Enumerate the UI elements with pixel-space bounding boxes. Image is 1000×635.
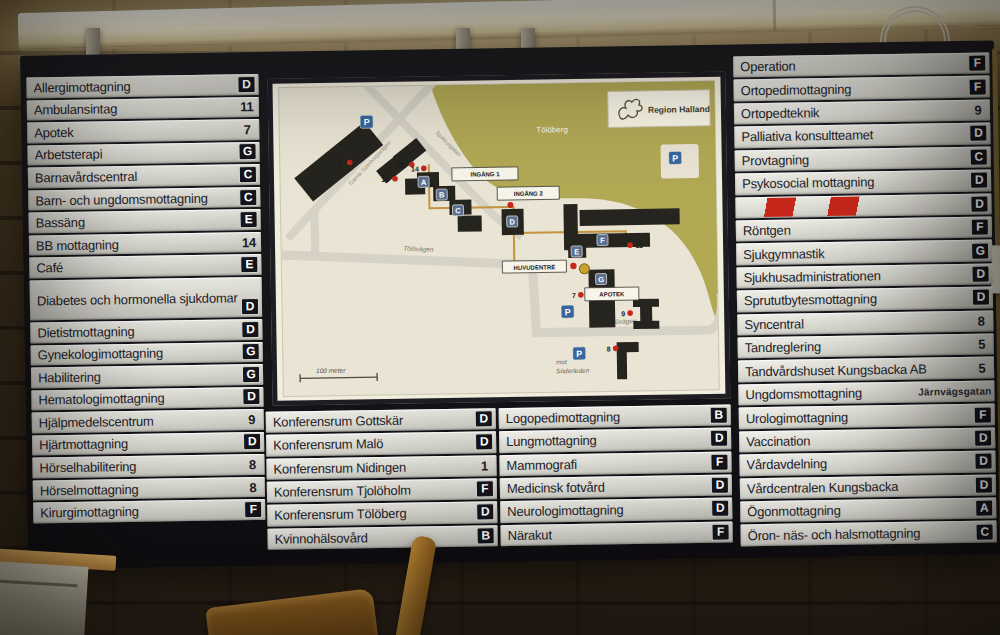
- row-badge: D: [969, 125, 987, 142]
- directory-row: BarnavårdscentralC: [28, 164, 260, 188]
- directory-row: Hjälpmedelscentrum9: [32, 409, 264, 433]
- row-label: Gynekologimottagning: [38, 345, 242, 363]
- directory-row: Hörselmottagning8: [33, 477, 265, 501]
- row-badge: C: [239, 166, 257, 183]
- row-label: Hörselmottagning: [40, 480, 244, 498]
- building-badge-b: B: [436, 189, 447, 200]
- directory-row: Psykosocial mottagningD: [735, 170, 991, 195]
- photo-scene: AllergimottagningDAmbulansintag11Apotek7…: [0, 0, 1000, 635]
- row-label: Palliativa konsultteamet: [741, 126, 969, 145]
- row-label: Barnavårdscentral: [35, 167, 239, 185]
- building-badge-c: C: [452, 205, 463, 216]
- directory-row: NeurologimottagningD: [500, 498, 732, 523]
- row-value: 5: [973, 360, 991, 375]
- svg-text:P: P: [576, 349, 582, 359]
- directory-row: NärakutF: [500, 521, 732, 546]
- row-badge: D: [242, 388, 260, 405]
- svg-text:3: 3: [339, 160, 343, 167]
- hill-label: Tölöberg: [536, 125, 568, 134]
- row-label: Café: [36, 257, 240, 275]
- row-label: Ortopedimottagning: [741, 79, 969, 98]
- row-label: Neurologimottagning: [507, 501, 711, 519]
- svg-text:9: 9: [621, 310, 625, 317]
- directory-row: ProvtagningC: [735, 146, 991, 171]
- svg-text:7: 7: [572, 292, 576, 299]
- row-label: Syncentral: [744, 314, 972, 333]
- row-badge: D: [237, 76, 255, 93]
- building-badge-f: F: [597, 234, 608, 245]
- directory-row: Palliativa konsultteametD: [734, 123, 990, 148]
- directory-row: HabiliteringG: [31, 364, 263, 388]
- directory-row: ArbetsterapiG: [27, 142, 259, 166]
- building-badge-a: A: [418, 176, 429, 187]
- row-badge: B: [476, 527, 494, 544]
- row-label: Konferensrum Gottskär: [273, 412, 475, 430]
- parking-icon: P: [669, 151, 682, 164]
- directory-row: Apotek7: [27, 119, 259, 143]
- row-label: Vaccination: [746, 431, 974, 450]
- directory-row: CaféE: [29, 254, 261, 278]
- directory-row: HjärtmottagningD: [32, 432, 264, 456]
- directory-row: Tandreglering5: [738, 333, 994, 358]
- directory-row: BassängE: [28, 209, 260, 233]
- directory-board: AllergimottagningDAmbulansintag11Apotek7…: [20, 40, 1000, 569]
- hospital-map: Gamla Göteborgsvägen Sjukhusgatan Tölövä…: [267, 72, 730, 406]
- row-label: Bassäng: [36, 212, 240, 230]
- directory-row: BB mottagning14: [29, 232, 261, 256]
- row-label: Logopedimottagning: [506, 408, 710, 426]
- row-label: Konferensrum Tjolöholm: [274, 482, 476, 500]
- directory-row: LogopedimottagningB: [499, 405, 731, 430]
- pharmacy-label: APOTEK: [585, 287, 639, 301]
- row-badge: D: [243, 433, 261, 450]
- row-label: Hjärtmottagning: [39, 435, 243, 453]
- row-badge: A: [975, 500, 993, 517]
- row-label: Lungmottagning: [506, 431, 710, 449]
- parking-icon: P: [360, 115, 373, 128]
- row-badge: D: [971, 265, 989, 282]
- svg-text:INGÅNG 2: INGÅNG 2: [514, 190, 544, 196]
- row-badge: F: [974, 406, 992, 423]
- svg-text:A: A: [421, 178, 427, 187]
- entrance-label: INGÅNG 1: [452, 167, 518, 181]
- row-label: Mammografi: [506, 455, 710, 473]
- svg-text:14: 14: [411, 165, 419, 172]
- row-label: Ungdomsmottagning: [745, 385, 918, 403]
- row-label: Arbetsterapi: [34, 145, 238, 163]
- svg-text:10: 10: [398, 162, 406, 169]
- row-label: Hematologimottagning: [38, 390, 242, 408]
- row-label: Provtagning: [742, 150, 970, 169]
- scale-label: 100 meter: [316, 367, 346, 374]
- svg-text:P: P: [364, 117, 370, 127]
- bus-stop-icon: [579, 264, 589, 274]
- row-badge: F: [968, 55, 986, 72]
- row-badge: D: [974, 453, 992, 470]
- row-badge: C: [970, 148, 988, 165]
- conference-rooms-panel: Konferensrum GottskärDKonferensrum MalöD…: [266, 408, 498, 550]
- row-label: Psykosocial mottagning: [742, 173, 970, 192]
- directory-row: UrologimottagningF: [739, 404, 995, 429]
- row-badge: D: [972, 289, 990, 306]
- svg-text:11: 11: [635, 242, 643, 249]
- directory-row: LungmottagningD: [499, 428, 731, 453]
- directory-row: Syncentral8: [737, 310, 993, 335]
- hazard-stripes: [757, 196, 875, 217]
- row-value: 7: [238, 122, 256, 137]
- row-badge: D: [241, 298, 259, 315]
- row-badge: F: [244, 501, 262, 518]
- svg-text:E: E: [574, 247, 579, 256]
- directory-row: Konferensrum TjolöholmF: [267, 478, 497, 503]
- row-label: Hörselhabilitering: [39, 457, 243, 475]
- row-value: 8: [243, 457, 261, 472]
- row-badge: E: [240, 256, 258, 273]
- directory-row: RöntgenF: [736, 216, 992, 241]
- entrance-label: HUVUDENTRÉ: [502, 260, 566, 273]
- row-badge: D: [970, 195, 988, 212]
- directory-row: ÖgonmottagningA: [740, 497, 996, 522]
- logo-text: Region Halland: [648, 104, 710, 115]
- row-value: Järnvägsgatan: [918, 386, 991, 398]
- row-badge: D: [475, 410, 493, 427]
- svg-text:B: B: [439, 191, 445, 200]
- row-badge: D: [970, 172, 988, 189]
- row-badge: C: [975, 523, 993, 540]
- directory-row: Hörselhabilitering8: [32, 454, 264, 478]
- row-label: Apotek: [34, 122, 238, 140]
- table-drawer: [0, 561, 89, 635]
- row-badge: D: [711, 500, 729, 517]
- directory-row: Vårdcentralen KungsbackaD: [740, 474, 996, 499]
- directory-row: Medicinsk fotvårdD: [500, 475, 732, 500]
- row-label: Tandvårdshuset Kungsbacka AB: [745, 360, 973, 379]
- row-badge: D: [975, 476, 993, 493]
- directory-row: AllergimottagningD: [26, 74, 258, 98]
- row-label: Hjälpmedelscentrum: [39, 412, 243, 430]
- row-badge: F: [971, 219, 989, 236]
- directory-row: GynekologimottagningG: [31, 341, 263, 365]
- svg-text:8: 8: [607, 345, 611, 352]
- svg-text:HUVUDENTRÉ: HUVUDENTRÉ: [514, 263, 556, 271]
- svg-text:P: P: [565, 307, 571, 317]
- row-badge: F: [711, 523, 729, 540]
- svg-text:G: G: [598, 275, 604, 284]
- svg-text:D: D: [509, 217, 515, 226]
- row-label: Öron- näs- och halsmottagning: [748, 524, 976, 543]
- row-value: 9: [243, 412, 261, 427]
- building-badge-g: G: [596, 273, 607, 284]
- row-value: 1: [475, 458, 493, 473]
- row-label: Kirurgimottagning: [40, 502, 244, 520]
- directory-row: SjukgymnastikG: [736, 240, 992, 265]
- row-value: 9: [969, 103, 987, 118]
- row-label: Ögonmottagning: [747, 501, 975, 520]
- row-badge: G: [238, 143, 256, 160]
- directory-row: KvinnohälsovårdB: [267, 525, 497, 550]
- directory-row: SprututbytesmottagningD: [737, 287, 993, 312]
- row-label: Habilitering: [38, 367, 242, 385]
- row-badge: F: [476, 480, 494, 497]
- directory-row: VaccinationD: [739, 427, 995, 452]
- directory-row: Konferensrum GottskärD: [266, 408, 496, 433]
- building-badge-d: D: [507, 216, 518, 227]
- row-label: Tandreglering: [745, 337, 973, 356]
- row-badge: C: [239, 188, 257, 205]
- clinics-panel: LogopedimottagningBLungmottagningDMammog…: [499, 405, 733, 547]
- row-label: Vårdavdelning: [746, 454, 974, 473]
- directory-row: HematologimottagningD: [31, 386, 263, 410]
- directory-row: Ambulansintag11: [27, 96, 259, 120]
- row-badge: D: [241, 321, 259, 338]
- svg-text:INGÅNG 1: INGÅNG 1: [470, 171, 500, 177]
- row-label: Dietistmottagning: [37, 322, 241, 340]
- row-value: 5: [973, 337, 991, 352]
- row-label: Ortopedteknik: [741, 103, 969, 122]
- map-panel: Gamla Göteborgsvägen Sjukhusgatan Tölövä…: [267, 72, 730, 406]
- directory-row: Konferensrum MalöD: [266, 432, 496, 457]
- parking-icon: P: [573, 347, 586, 360]
- row-label: Allergimottagning: [33, 77, 237, 95]
- row-value: 8: [244, 479, 262, 494]
- row-label: Ambulansintag: [34, 100, 238, 118]
- row-badge: F: [710, 453, 728, 470]
- right-directory-panel: OperationFOrtopedimottagningFOrtopedtekn…: [733, 52, 997, 546]
- directory-row: D: [735, 193, 991, 218]
- region-halland-logo: Region Halland: [608, 90, 711, 128]
- row-badge: B: [710, 407, 728, 424]
- row-badge: D: [476, 504, 494, 521]
- row-label: Medicinsk fotvård: [507, 478, 711, 496]
- row-label: Sjukhusadministrationen: [743, 267, 971, 286]
- directory-row: Barn- och ungdomsmottagningC: [28, 187, 260, 211]
- directory-row: KirurgimottagningF: [33, 499, 265, 523]
- building-badge-e: E: [571, 246, 582, 257]
- row-badge: E: [239, 211, 257, 228]
- directory-row: SjukhusadministrationenD: [736, 263, 992, 288]
- row-label: Barn- och ungdomsmottagning: [35, 190, 239, 208]
- row-badge: D: [711, 477, 729, 494]
- row-badge: D: [475, 434, 493, 451]
- directory-row: Tandvårdshuset Kungsbacka AB5: [738, 357, 994, 382]
- row-label: Närakut: [508, 525, 712, 543]
- parking-icon: P: [561, 305, 574, 318]
- left-directory-panel: AllergimottagningDAmbulansintag11Apotek7…: [26, 74, 265, 524]
- svg-text:F: F: [600, 236, 605, 245]
- row-label: Konferensrum Tölöberg: [274, 505, 476, 523]
- row-label: Vårdcentralen Kungsbacka: [747, 478, 975, 497]
- directory-row: UngdomsmottagningJärnvägsgatan: [738, 380, 994, 405]
- directory-row: DietistmottagningD: [30, 319, 262, 343]
- row-label: BB mottagning: [36, 235, 240, 253]
- row-badge: D: [974, 429, 992, 446]
- row-label: Konferensrum Malö: [273, 435, 475, 453]
- svg-text:P: P: [672, 153, 678, 163]
- row-label: Röntgen: [743, 220, 971, 239]
- row-label: Operation: [740, 56, 968, 75]
- directory-row: Konferensrum TölöbergD: [267, 502, 497, 527]
- light-seam: [773, 0, 777, 31]
- row-badge: D: [710, 430, 728, 447]
- directory-row: MammografiF: [499, 451, 731, 476]
- row-badge: G: [242, 366, 260, 383]
- row-label: Urologimottagning: [746, 407, 974, 426]
- svg-text:12: 12: [381, 176, 389, 183]
- row-value: 8: [972, 313, 990, 328]
- row-value: 14: [240, 235, 258, 250]
- svg-text:APOTEK: APOTEK: [599, 291, 625, 297]
- directory-row: OrtopedimottagningF: [733, 76, 989, 101]
- row-label: Konferensrum Nidingen: [273, 458, 475, 476]
- directory-row: Ortopedteknik9: [734, 99, 990, 124]
- directory-row: Diabetes och hormonella sjukdomarD: [30, 277, 263, 321]
- row-label: Sprututbytesmottagning: [744, 290, 972, 309]
- row-badge: G: [971, 242, 989, 259]
- row-badge: F: [968, 78, 986, 95]
- row-label: Kvinnohälsovård: [275, 528, 477, 546]
- directory-row: OperationF: [733, 52, 989, 77]
- row-label: Diabetes och hormonella sjukdomar: [37, 291, 241, 308]
- directory-row: VårdavdelningD: [739, 451, 995, 476]
- row-badge: G: [242, 343, 260, 360]
- row-label: Sjukgymnastik: [743, 243, 971, 262]
- entrance-label: INGÅNG 2: [497, 186, 559, 200]
- row-value: 11: [238, 99, 256, 114]
- directory-row: Konferensrum Nidingen1: [266, 455, 496, 480]
- svg-text:C: C: [455, 206, 461, 215]
- directory-row: Öron- näs- och halsmottagningC: [740, 521, 996, 546]
